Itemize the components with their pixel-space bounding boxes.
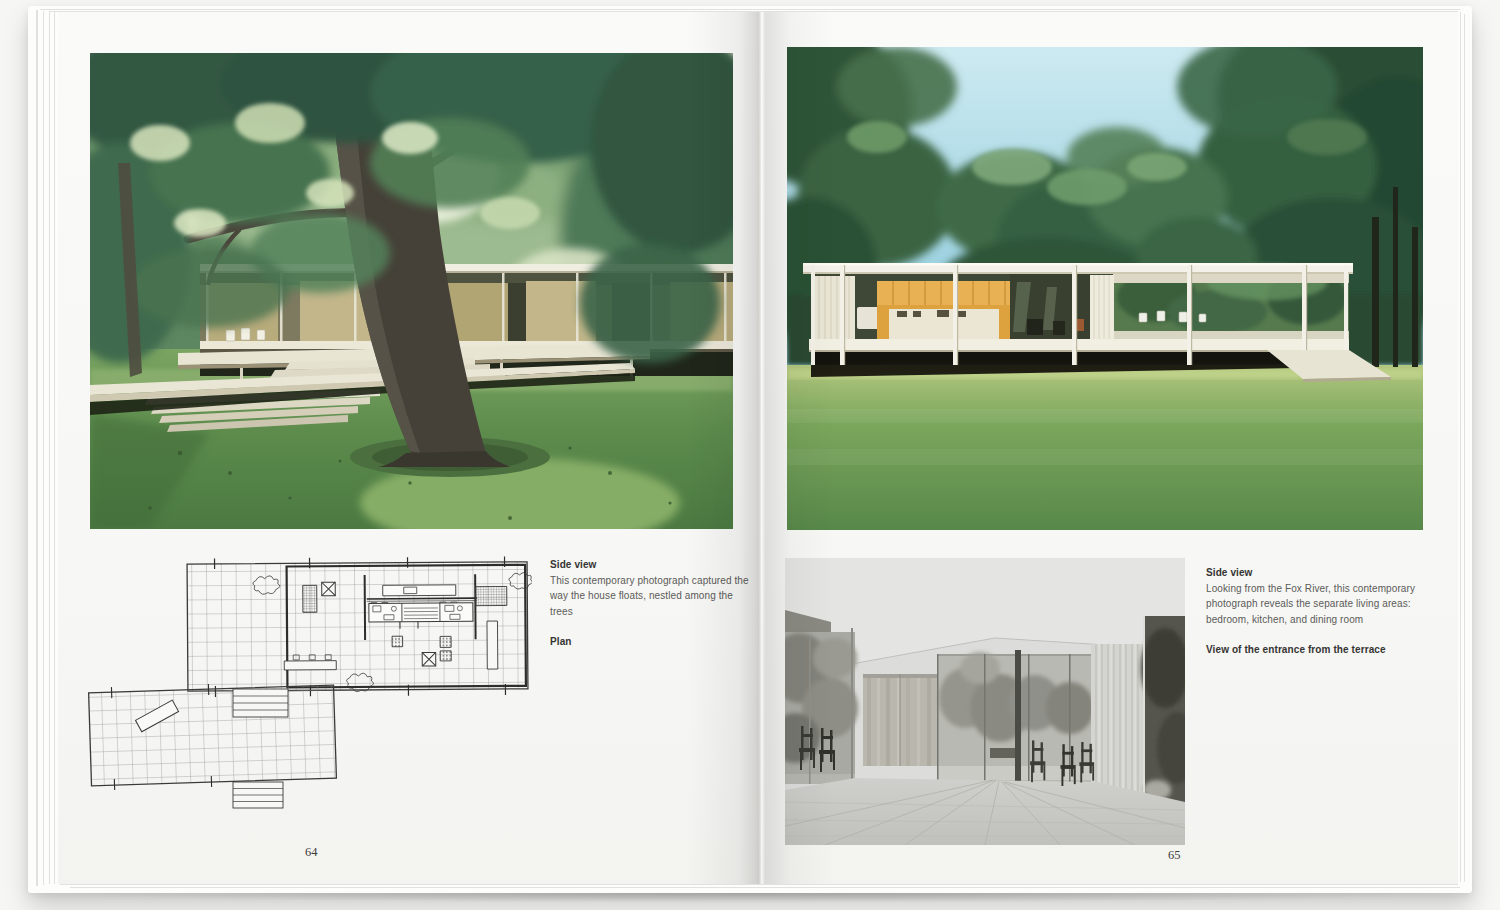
interior-photo-bw bbox=[785, 558, 1185, 845]
page-edge bbox=[43, 11, 44, 885]
page-edge bbox=[1460, 12, 1461, 882]
caption-title: Side view bbox=[550, 557, 750, 573]
page-edge bbox=[54, 12, 55, 884]
left-page-caption: Side view This contemporary photograph c… bbox=[550, 557, 750, 650]
caption-interior-title: View of the entrance from the terrace bbox=[1206, 642, 1418, 658]
book-spread-photo: Side view This contemporary photograph c… bbox=[0, 0, 1500, 910]
right-photo-house-elevation bbox=[787, 47, 1423, 530]
right-page-caption: Side view Looking from the Fox River, th… bbox=[1206, 565, 1418, 658]
page-edge bbox=[40, 9, 1460, 10]
caption-plan-title: Plan bbox=[550, 634, 750, 650]
page-edge bbox=[60, 884, 1458, 885]
page-edge bbox=[1464, 14, 1465, 882]
left-photo-house-through-trees bbox=[90, 53, 733, 529]
page-number-right: 65 bbox=[1168, 848, 1181, 863]
page-edge bbox=[49, 11, 50, 884]
floor-plan-drawing bbox=[88, 556, 532, 818]
caption-body: Looking from the Fox River, this contemp… bbox=[1206, 581, 1418, 628]
caption-title: Side view bbox=[1206, 565, 1418, 581]
page-edge bbox=[36, 10, 38, 886]
book-shadow bbox=[40, 893, 1460, 903]
caption-body: This contemporary photograph captured th… bbox=[550, 573, 750, 620]
page-number-left: 64 bbox=[305, 845, 318, 860]
page-edge bbox=[70, 887, 1460, 888]
